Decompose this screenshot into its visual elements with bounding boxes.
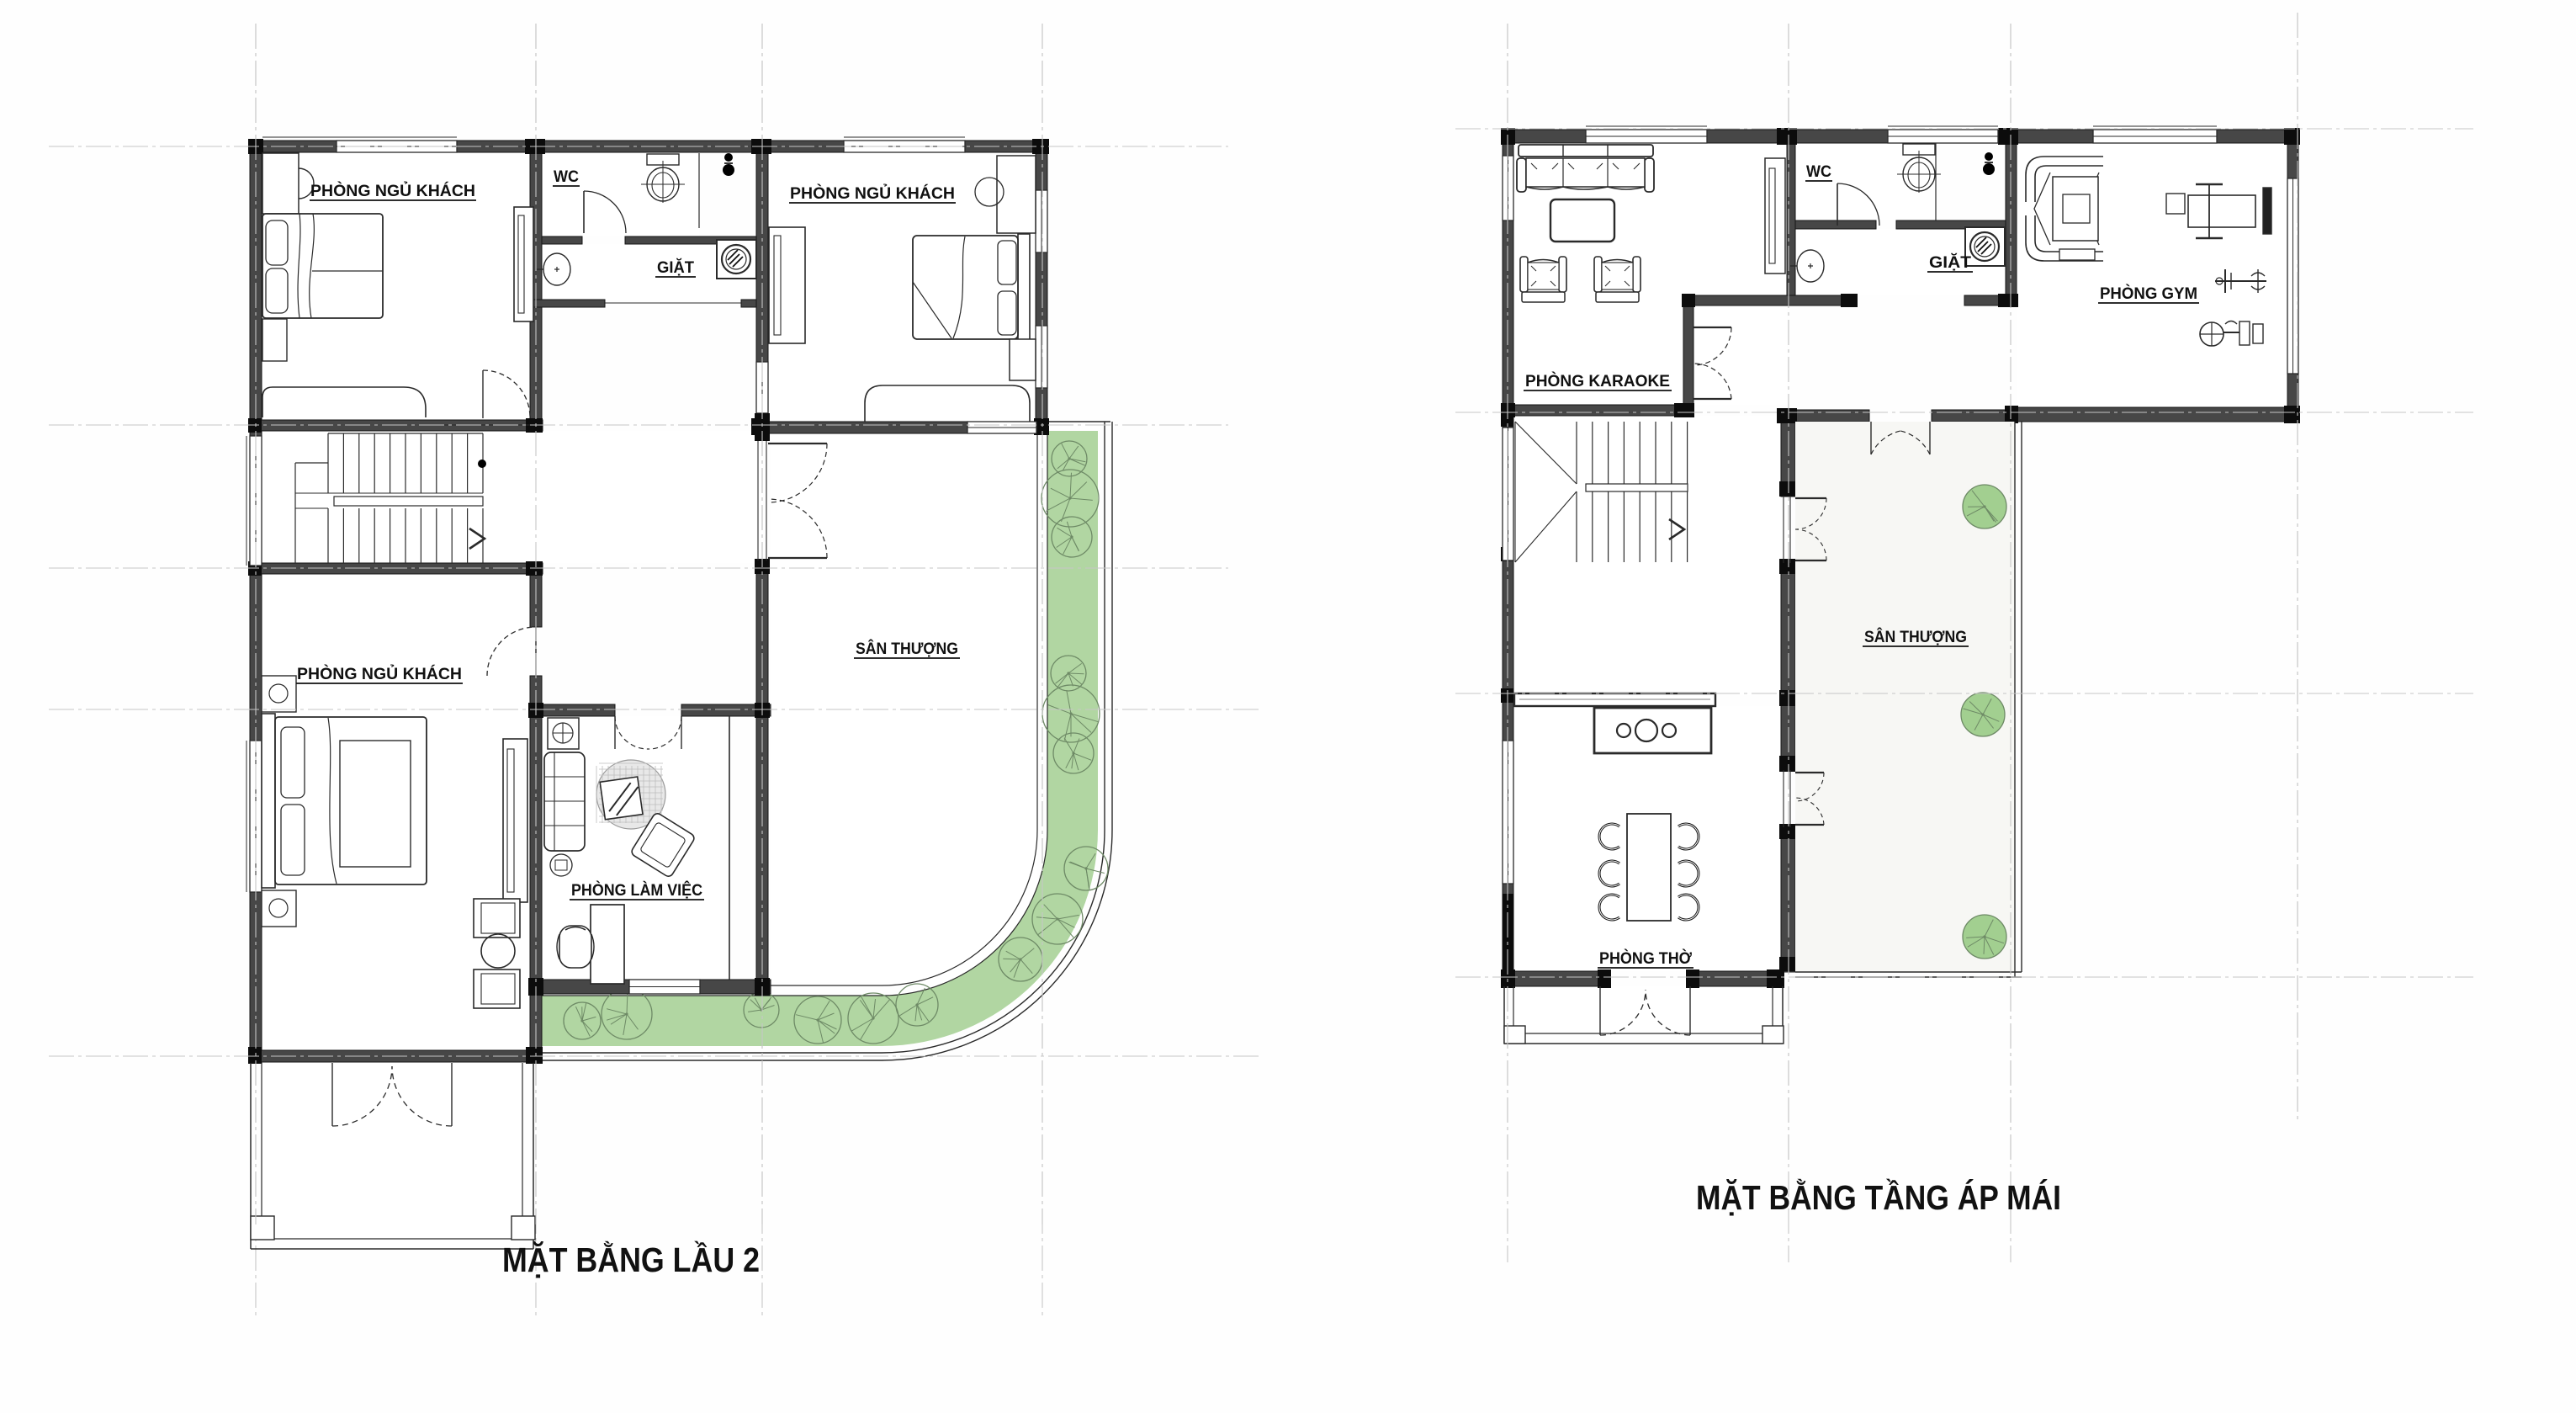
svg-text:WC: WC	[1806, 163, 1831, 181]
svg-text:PHÒNG NGỦ KHÁCH: PHÒNG NGỦ KHÁCH	[297, 665, 462, 683]
svg-text:GIẶT: GIẶT	[657, 258, 694, 277]
svg-text:PHÒNG NGỦ KHÁCH: PHÒNG NGỦ KHÁCH	[310, 182, 475, 200]
svg-text:WC: WC	[554, 168, 579, 186]
svg-text:SÂN THƯỢNG: SÂN THƯỢNG	[856, 640, 958, 658]
svg-text:PHÒNG NGỦ KHÁCH: PHÒNG NGỦ KHÁCH	[790, 184, 955, 203]
svg-text:PHÒNG GYM: PHÒNG GYM	[2100, 284, 2197, 303]
svg-text:GIẶT: GIẶT	[1929, 253, 1971, 272]
svg-text:PHÒNG KARAOKE: PHÒNG KARAOKE	[1525, 372, 1670, 390]
svg-text:MẶT BẰNG LẦU 2: MẶT BẰNG LẦU 2	[502, 1240, 760, 1279]
svg-text:MẶT BẰNG TẦNG ÁP MÁI: MẶT BẰNG TẦNG ÁP MÁI	[1696, 1178, 2061, 1217]
svg-text:SÂN THƯỢNG: SÂN THƯỢNG	[1864, 628, 1967, 646]
svg-text:PHÒNG THỜ: PHÒNG THỜ	[1599, 949, 1693, 968]
svg-text:PHÒNG LÀM VIỆC: PHÒNG LÀM VIỆC	[571, 881, 702, 900]
